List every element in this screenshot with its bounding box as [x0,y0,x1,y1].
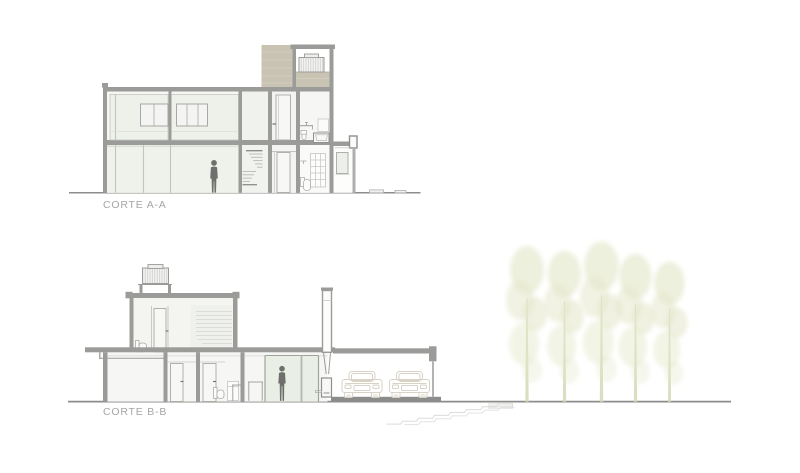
window-bay-2 [172,95,239,141]
bathroom-upper [300,92,330,143]
glazed-wall-lower [107,145,239,193]
car-outline-2 [390,372,430,398]
sections-drawing [0,0,800,473]
stairwell-lower [242,145,268,193]
corte-bb-drawing [68,241,731,424]
corte-aa-drawing [69,45,421,194]
lower-floor-aa [107,145,330,193]
stairs-upper-bb [191,305,233,352]
stairwell-glass-upper [242,92,268,141]
bathtub [314,133,330,143]
section-label-aa: CORTE A-A [103,199,167,211]
extension-window [337,153,349,174]
car-outline-1 [342,372,382,398]
lower-hall-door [272,145,296,193]
upper-floor-aa [107,92,330,143]
water-tank [299,54,324,72]
drawing-sheet: CORTE A-A CORTE B-B [0,0,800,473]
upper-hall-door [272,92,296,141]
ramp-outline-bb [387,404,515,425]
utility-room-lower [300,145,330,193]
upper-storey-bb [126,265,240,353]
tree-row [506,241,688,402]
water-tank-bb [138,265,172,294]
window-bay-1 [110,95,168,141]
right-extension-aa [334,136,358,193]
section-label-bb: CORTE B-B [103,406,167,418]
carport-bb [333,346,437,397]
glazed-wall-bb [265,356,319,402]
carport-column [432,361,434,397]
